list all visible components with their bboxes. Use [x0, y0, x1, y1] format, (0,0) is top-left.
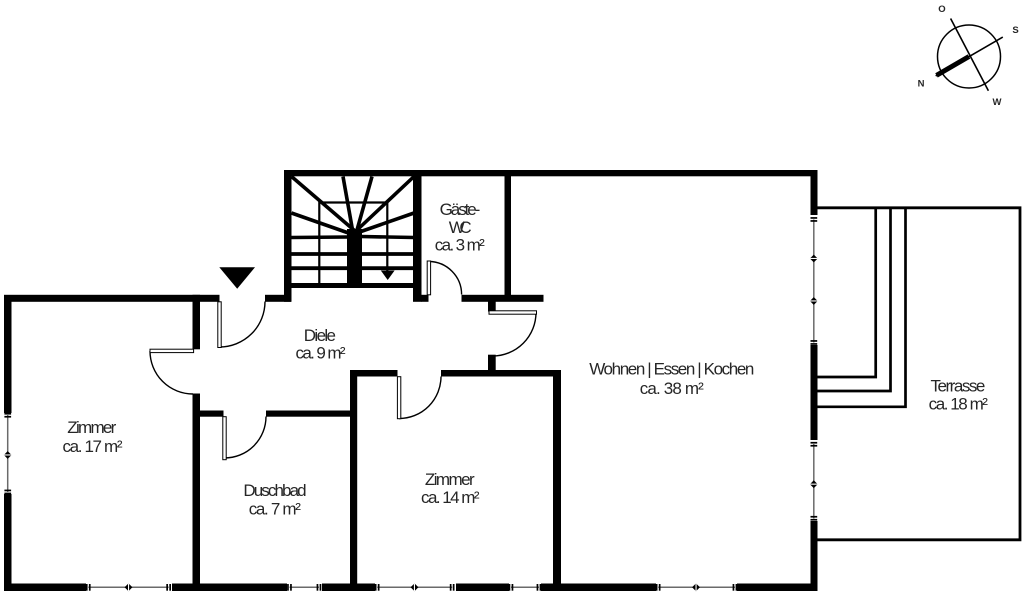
- svg-text:ca. 38 m²: ca. 38 m²: [640, 379, 704, 398]
- svg-text:Terrasse: Terrasse: [930, 376, 985, 395]
- svg-text:W: W: [993, 97, 1002, 108]
- svg-text:ca. 14 m²: ca. 14 m²: [421, 488, 480, 507]
- svg-text:ca. 3 m²: ca. 3 m²: [435, 235, 485, 254]
- svg-text:ca. 9 m²: ca. 9 m²: [295, 344, 345, 363]
- svg-text:Zimmer: Zimmer: [67, 418, 116, 437]
- svg-text:Duschbad: Duschbad: [243, 481, 306, 500]
- svg-text:WC: WC: [449, 218, 472, 237]
- svg-text:Diele: Diele: [304, 326, 336, 345]
- svg-text:N: N: [918, 79, 925, 90]
- svg-text:Zimmer: Zimmer: [425, 470, 475, 489]
- svg-text:Wohnen | Essen | Kochen: Wohnen | Essen | Kochen: [589, 360, 754, 379]
- svg-text:ca. 7 m²: ca. 7 m²: [249, 499, 302, 518]
- svg-text:ca. 17 m²: ca. 17 m²: [63, 437, 123, 456]
- svg-text:Gäste-: Gäste-: [440, 200, 481, 219]
- svg-text:S: S: [1012, 25, 1018, 36]
- svg-text:ca. 18 m²: ca. 18 m²: [929, 394, 989, 413]
- svg-text:O: O: [938, 4, 945, 15]
